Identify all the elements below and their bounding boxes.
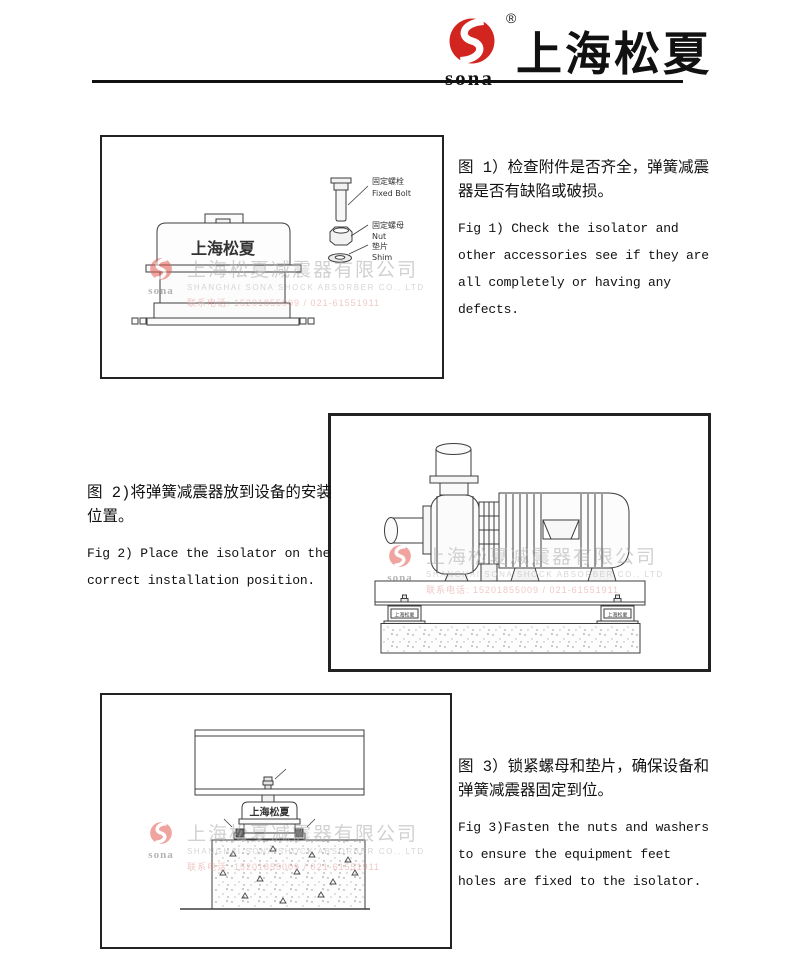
caption-2-en: Fig 2) Place the isolator on the correct… <box>87 540 339 594</box>
part-label-nut-en: Nut <box>372 232 386 241</box>
shim-drawing <box>329 245 369 262</box>
pump-drawing <box>385 444 500 582</box>
figure-3-box: 上海松夏 sona <box>100 693 452 949</box>
concrete-base <box>180 840 370 909</box>
fixed-bolt-drawing <box>331 178 368 221</box>
figure-1-drawing: 上海松夏 固定螺栓 Fixed Bolt <box>102 137 438 373</box>
equipment-beam <box>195 730 364 795</box>
motor-drawing <box>499 493 629 581</box>
registered-mark: ® <box>506 10 516 26</box>
part-label-bolt-en: Fixed Bolt <box>372 189 411 198</box>
figure-3-caption: 图 3）锁紧螺母和垫片，确保设备和 弹簧减震器固定到位。 Fig 3)Faste… <box>458 755 794 895</box>
base-frame <box>375 581 645 605</box>
figure-1-box: 上海松夏 固定螺栓 Fixed Bolt <box>100 135 444 379</box>
part-label-shim-en: Shim <box>372 253 392 262</box>
caption-3-cn: 图 3）锁紧螺母和垫片，确保设备和 弹簧减震器固定到位。 <box>458 755 794 803</box>
isolator-left-label: 上海松夏 <box>394 612 414 619</box>
figure-1-caption: 图 1）检查附件是否齐全，弹簧减震 器是否有缺陷或破损。 Fig 1) Chec… <box>458 156 794 323</box>
brand-title: 上海松夏 <box>516 18 712 84</box>
brand-header: ® sona 上海松夏 <box>0 0 800 90</box>
concrete-foundation <box>381 624 640 654</box>
isolator-brand-label: 上海松夏 <box>191 239 256 258</box>
part-label-bolt-cn: 固定螺栓 <box>372 176 404 186</box>
part-label-nut-cn: 固定螺母 <box>372 220 404 230</box>
isolator-drawing <box>132 214 314 325</box>
figure-2-box: 上海松夏 上海松夏 sona 上海松夏减震器有限公司 <box>328 413 711 672</box>
nut-drawing <box>330 225 368 245</box>
header-rule <box>92 80 683 83</box>
caption-1-en: Fig 1) Check the isolator and other acce… <box>458 215 794 323</box>
page: ® sona 上海松夏 <box>0 0 800 965</box>
figure-2-caption: 图 2)将弹簧减震器放到设备的安装 位置。 Fig 2) Place the i… <box>87 481 339 594</box>
isolator-brand-label: 上海松夏 <box>250 806 291 819</box>
figure-3-drawing: 上海松夏 <box>102 695 446 943</box>
caption-3-en: Fig 3)Fasten the nuts and washers to ens… <box>458 814 794 895</box>
sona-logo-icon <box>443 12 501 70</box>
caption-1-cn: 图 1）检查附件是否齐全，弹簧减震 器是否有缺陷或破损。 <box>458 156 794 204</box>
sona-logo-text: sona <box>445 66 494 91</box>
part-label-shim-cn: 垫片 <box>372 241 388 251</box>
sona-logo: ® sona <box>443 10 523 88</box>
anchor-bolt-left <box>401 595 408 602</box>
anchor-bolt-right <box>614 595 621 602</box>
caption-2-cn: 图 2)将弹簧减震器放到设备的安装 位置。 <box>87 481 339 529</box>
isolator-right-label: 上海松夏 <box>607 612 627 619</box>
figure-2-drawing: 上海松夏 上海松夏 <box>331 416 702 663</box>
